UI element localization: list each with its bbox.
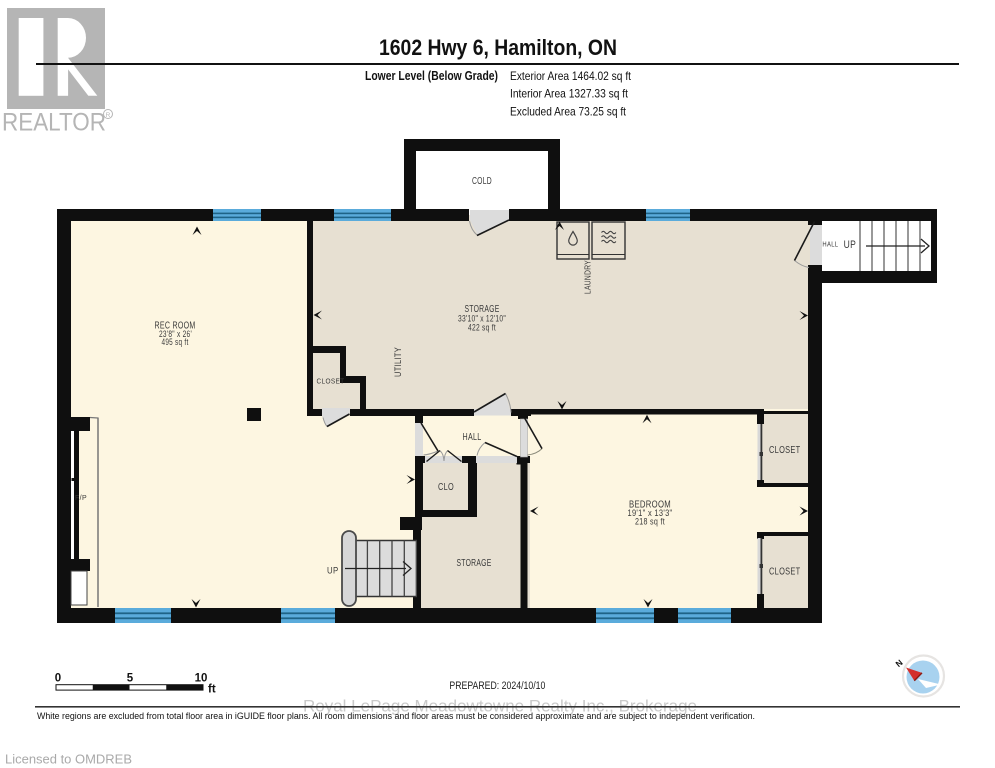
svg-text:CLO: CLO [438, 482, 454, 493]
svg-text:5: 5 [127, 673, 134, 685]
svg-text:1602 Hwy 6, Hamilton, ON: 1602 Hwy 6, Hamilton, ON [379, 35, 617, 60]
svg-text:White regions are excluded fro: White regions are excluded from total fl… [37, 711, 755, 721]
svg-text:10: 10 [195, 673, 208, 685]
svg-text:CLOSET: CLOSET [769, 445, 801, 456]
svg-text:Interior Area 1327.33 sq ft: Interior Area 1327.33 sq ft [510, 87, 629, 101]
svg-text:Exterior Area 1464.02 sq ft: Exterior Area 1464.02 sq ft [510, 69, 632, 83]
svg-text:F/P: F/P [75, 493, 87, 502]
svg-text:218 sq ft: 218 sq ft [635, 516, 665, 527]
svg-text:HALL: HALL [463, 432, 482, 443]
svg-text:UTILITY: UTILITY [393, 347, 404, 377]
svg-text:UP: UP [844, 239, 857, 251]
svg-text:422 sq ft: 422 sq ft [468, 322, 496, 333]
svg-text:CLOSET: CLOSET [769, 567, 801, 578]
svg-text:0: 0 [55, 673, 61, 685]
svg-text:LAUNDRY: LAUNDRY [583, 260, 593, 294]
svg-text:STORAGE: STORAGE [457, 557, 492, 569]
svg-text:495 sq ft: 495 sq ft [162, 337, 189, 348]
svg-text:HALL: HALL [822, 240, 838, 249]
svg-text:UP: UP [327, 566, 339, 577]
svg-text:R: R [106, 112, 111, 119]
svg-text:Licensed to OMDREB: Licensed to OMDREB [5, 752, 132, 767]
svg-text:ft: ft [208, 684, 216, 696]
svg-text:PREPARED: 2024/10/10: PREPARED: 2024/10/10 [449, 680, 545, 692]
svg-text:REALTOR: REALTOR [2, 109, 106, 137]
svg-text:COLD: COLD [472, 176, 492, 187]
svg-text:CLOSET: CLOSET [317, 376, 345, 385]
svg-text:Lower Level (Below Grade): Lower Level (Below Grade) [365, 69, 498, 83]
svg-text:Excluded Area 73.25 sq ft: Excluded Area 73.25 sq ft [510, 104, 627, 118]
